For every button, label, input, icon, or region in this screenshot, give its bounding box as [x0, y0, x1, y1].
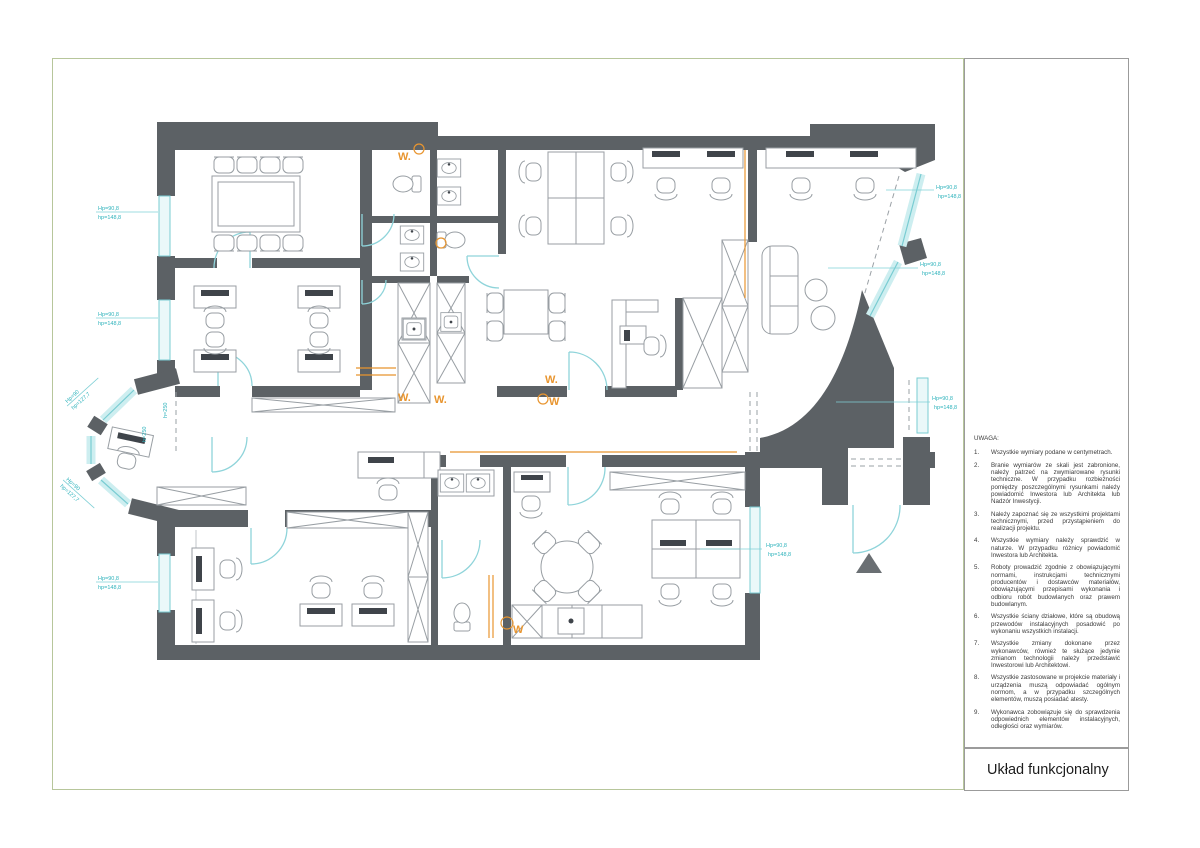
window	[159, 196, 170, 256]
wardrobe	[287, 512, 408, 528]
note-text: Wszystkie wymiary podane w centymetrach.	[991, 449, 1120, 456]
note-number: 8.	[974, 674, 991, 703]
bottom-room-desk	[514, 472, 550, 518]
floor-plan-sheet: W. W. W. W. W W Hp=90,8 hp=148,8 Hp=90,8…	[0, 0, 1200, 848]
window-dim-label: Hp=90,8	[98, 206, 119, 212]
height-label: h=250	[142, 427, 148, 442]
window-dim-label: Hp=90,8	[766, 543, 787, 549]
window-dim-label: Hp=90,8	[98, 312, 119, 318]
bay-dim-label: Hp=90 hp=127,7	[63, 373, 104, 412]
note-item: 5. Roboty prowadzić zgodnie z obowiązują…	[974, 564, 1120, 608]
corner-desk	[612, 300, 666, 388]
note-text: Wykonawca zobowiązuje się do sprawdzenia…	[991, 709, 1120, 731]
window	[159, 300, 170, 360]
conference-table	[212, 176, 300, 232]
note-number: 7.	[974, 640, 991, 669]
water-marker: W	[513, 624, 524, 636]
note-text: Branie wymiarów ze skali jest zabronione…	[991, 462, 1120, 506]
window-dim-label: hp=148,8	[934, 405, 957, 411]
floor-plan-drawing: W. W. W. W. W W Hp=90,8 hp=148,8 Hp=90,8…	[0, 0, 968, 848]
hall-wardrobe	[252, 398, 395, 412]
note-number: 4.	[974, 537, 991, 559]
note-number: 9.	[974, 709, 991, 731]
window-dim-label: Hp=90,8	[936, 185, 957, 191]
notes-panel: UWAGA: 1. Wszystkie wymiary podane w cen…	[964, 58, 1129, 748]
note-number: 3.	[974, 511, 991, 533]
note-number: 1.	[974, 449, 991, 456]
pouf	[805, 279, 827, 301]
window-dim-label: Hp=90,8	[920, 262, 941, 268]
note-item: 2. Branie wymiarów ze skali jest zabroni…	[974, 462, 1120, 506]
note-number: 6.	[974, 613, 991, 635]
wardrobe	[157, 487, 246, 505]
wardrobe	[610, 472, 745, 490]
note-item: 4. Wszystkie wymiary należy sprawdzić w …	[974, 537, 1120, 559]
window-dim-label: hp=148,8	[938, 194, 961, 200]
kitchen-cabinet-strip	[398, 283, 430, 403]
open-office-top-desks	[643, 148, 743, 200]
note-number: 5.	[974, 564, 991, 608]
sofa	[762, 246, 798, 334]
round-side-table	[811, 306, 835, 330]
window-dim-label: hp=148,8	[98, 585, 121, 591]
note-text: Roboty prowadzić zgodnie z obowiązującym…	[991, 564, 1120, 608]
lounge-desks	[766, 148, 916, 200]
drawing-title: Układ funkcjonalny	[965, 762, 1109, 778]
title-block: Układ funkcjonalny	[964, 748, 1129, 791]
window	[917, 378, 928, 433]
note-item: 3. Należy zapoznać się ze wszystkimi pro…	[974, 511, 1120, 533]
wardrobe	[722, 240, 748, 372]
note-item: 1. Wszystkie wymiary podane w centymetra…	[974, 449, 1120, 456]
wc-core	[393, 159, 465, 271]
window-dim-label: hp=148,8	[768, 552, 791, 558]
wc-bottom	[438, 470, 494, 631]
window-dim-label: hp=148,8	[922, 271, 945, 277]
note-item: 9. Wykonawca zobowiązuje się do sprawdze…	[974, 709, 1120, 731]
note-text: Wszystkie zmiany dokonane przez wykonawc…	[991, 640, 1120, 669]
wardrobe	[683, 298, 722, 388]
cabinets-layer	[157, 240, 748, 642]
entrance-arrow	[856, 553, 882, 573]
note-item: 7. Wszystkie zmiany dokonane przez wykon…	[974, 640, 1120, 669]
window	[159, 554, 170, 612]
note-text: Wszystkie ściany działowe, które są obud…	[991, 613, 1120, 635]
kitchen-cabinet-strip	[437, 283, 465, 383]
note-item: 8. Wszystkie zastosowane w projekcie mat…	[974, 674, 1120, 703]
note-item: 6. Wszystkie ściany działowe, które są o…	[974, 613, 1120, 635]
hall-desk	[358, 452, 440, 500]
height-label: h=250	[163, 403, 169, 418]
window-dim-label: hp=148,8	[98, 215, 121, 221]
window-dim-label: Hp=90,8	[932, 396, 953, 402]
note-number: 2.	[974, 462, 991, 506]
water-marker: W.	[398, 392, 411, 404]
bay-dim-label: Hp=90 hp=127,7	[57, 476, 98, 515]
round-table-group	[532, 530, 601, 603]
bottom-left-workstations	[192, 548, 394, 642]
square-table-group	[487, 290, 565, 341]
open-office-cluster	[519, 152, 633, 244]
note-text: Wszystkie wymiary należy sprawdzić w nat…	[991, 537, 1120, 559]
window	[750, 507, 760, 593]
water-marker: W.	[545, 374, 558, 386]
window-dim-label: Hp=90,8	[98, 576, 119, 582]
note-text: Należy zapoznać się ze wszystkimi projek…	[991, 511, 1120, 533]
wardrobe	[408, 512, 428, 642]
water-marker: W.	[398, 151, 411, 163]
window-dim-label: hp=148,8	[98, 321, 121, 327]
kitchen-counter	[512, 605, 642, 638]
water-marker: W	[549, 396, 560, 408]
water-marker: W.	[434, 394, 447, 406]
notes-heading: UWAGA:	[974, 435, 1120, 442]
entrance-door	[853, 505, 900, 553]
note-text: Wszystkie zastosowane w projekcie materi…	[991, 674, 1120, 703]
office-workstations	[194, 286, 340, 372]
